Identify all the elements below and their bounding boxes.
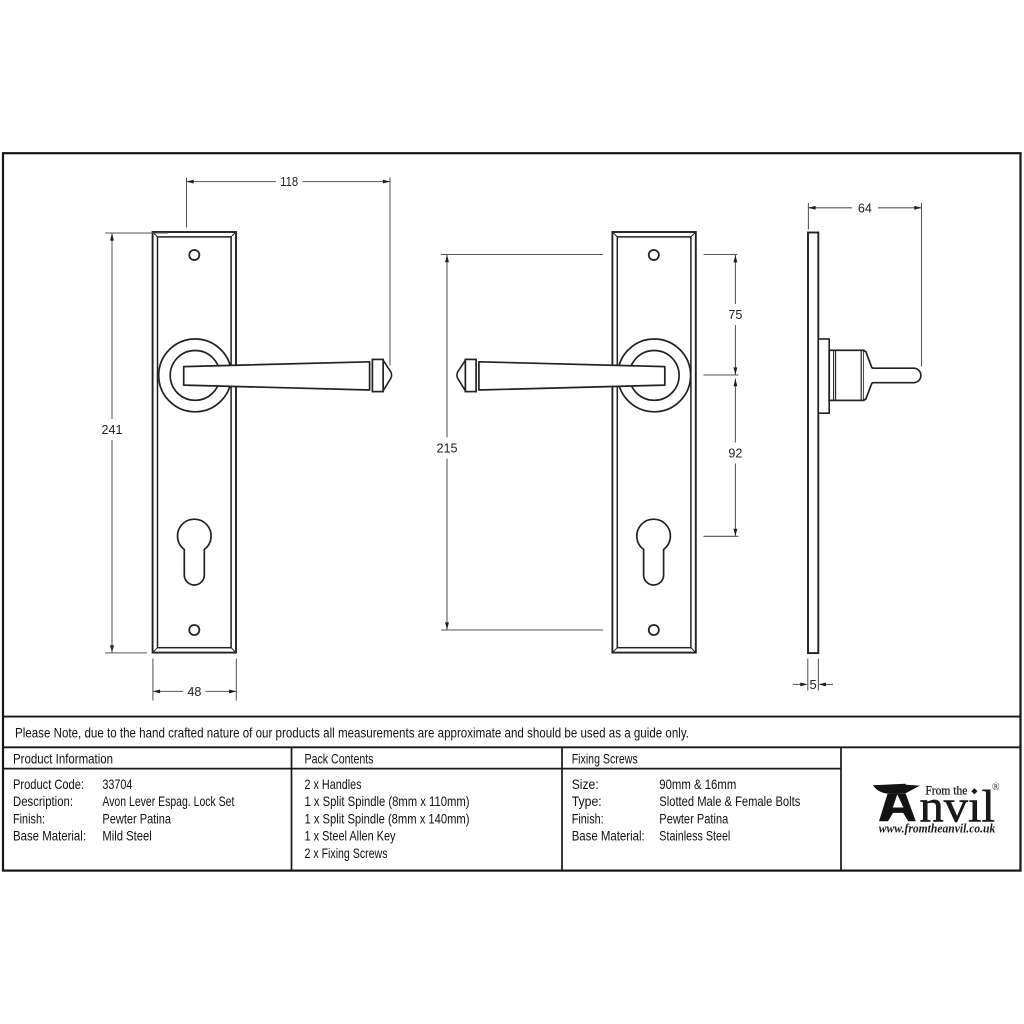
svg-text:Stainless Steel: Stainless Steel [659,828,730,844]
svg-text:Finish:: Finish: [572,810,604,826]
svg-text:®: ® [992,782,1000,793]
svg-text:33704: 33704 [102,776,132,792]
svg-text:5: 5 [809,677,816,692]
svg-text:Avon Lever Espag. Lock Set: Avon Lever Espag. Lock Set [102,793,234,809]
svg-text:Slotted Male & Female Bolts: Slotted Male & Female Bolts [659,793,800,809]
svg-text:Size:: Size: [572,776,599,792]
svg-text:Fixing Screws: Fixing Screws [572,750,638,766]
svg-text:Pewter Patina: Pewter Patina [102,810,171,826]
svg-text:90mm & 16mm: 90mm & 16mm [659,776,736,792]
svg-text:Mild Steel: Mild Steel [102,828,151,844]
svg-text:1 x Split Spindle (8mm x 140mm: 1 x Split Spindle (8mm x 140mm) [305,810,470,826]
svg-text:1 x Steel Allen Key: 1 x Steel Allen Key [305,828,396,844]
svg-text:Please Note, due to the hand c: Please Note, due to the hand crafted nat… [15,725,689,741]
svg-text:Product Code:: Product Code: [13,776,84,792]
svg-text:Pewter Patina: Pewter Patina [659,810,728,826]
svg-text:Description:: Description: [13,793,73,809]
svg-text:92: 92 [728,446,742,461]
svg-text:Product Information: Product Information [13,750,113,766]
svg-text:Type:: Type: [572,793,602,809]
svg-text:Pack Contents: Pack Contents [305,750,374,766]
svg-text:Base Material:: Base Material: [572,828,645,844]
svg-text:241: 241 [102,422,123,437]
svg-text:2 x Handles: 2 x Handles [305,776,362,792]
svg-text:48: 48 [187,684,201,699]
svg-text:215: 215 [437,440,458,455]
svg-text:Finish:: Finish: [13,810,45,826]
svg-text:www.fromtheanvil.co.uk: www.fromtheanvil.co.uk [879,820,996,835]
svg-text:64: 64 [858,200,872,215]
svg-text:Base Material:: Base Material: [13,828,86,844]
svg-text:From the: From the [925,784,967,798]
svg-text:75: 75 [728,307,742,322]
svg-text:1 x Split Spindle (8mm x 110mm: 1 x Split Spindle (8mm x 110mm) [305,793,470,809]
svg-text:2 x Fixing Screws: 2 x Fixing Screws [305,845,388,861]
svg-text:118: 118 [280,174,298,189]
